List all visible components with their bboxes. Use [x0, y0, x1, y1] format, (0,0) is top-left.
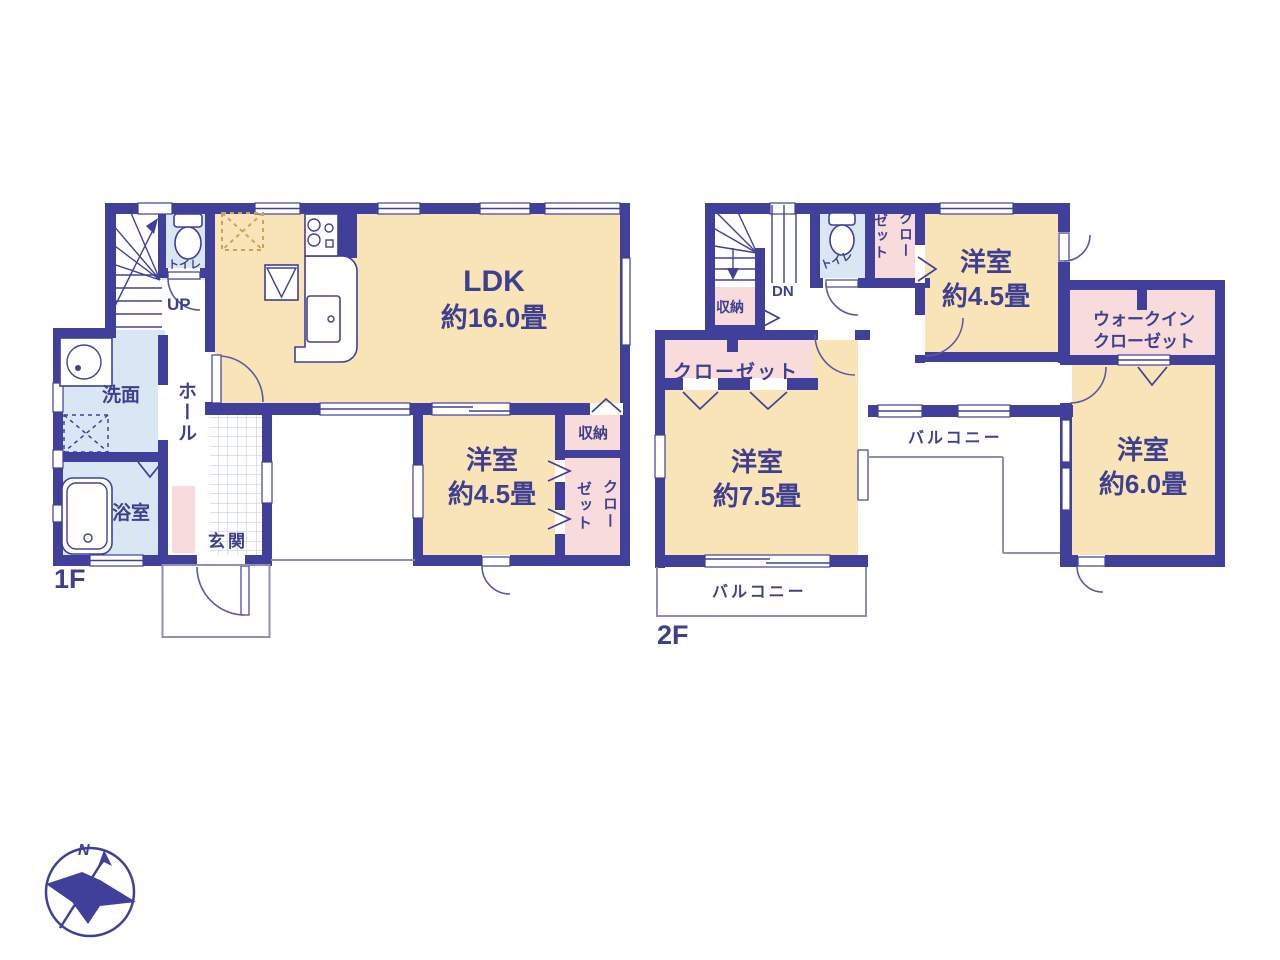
label-closet-1f-col1: クロー: [599, 479, 620, 541]
label-bathroom: 浴室: [112, 498, 150, 525]
compass-icon: [46, 848, 136, 936]
shoe-cabinet: [172, 486, 195, 553]
label-washroom: 洗面: [102, 380, 140, 407]
hood-triangle-icon: [265, 265, 298, 300]
label-balcony-side: バルコニー: [908, 424, 1003, 448]
label-toilet-1f: トイレ: [168, 256, 201, 272]
label-balcony-bottom: バルコニー: [712, 578, 807, 602]
wic-line2: クローゼット: [1066, 331, 1222, 353]
label-stairs-up: UP: [167, 295, 191, 315]
label-ldk: LDK 約16.0畳: [394, 262, 594, 336]
label-hall: ホール: [172, 381, 199, 453]
label-bedroom45-1f: 洋室 約4.5畳: [392, 444, 592, 512]
label-closet-2f: クローゼット: [673, 357, 799, 384]
toilet-icon-1f: [174, 214, 202, 259]
room-name: 洋室: [1043, 434, 1243, 468]
label-stairs-down: DN: [772, 283, 794, 300]
room-name: LDK: [394, 262, 594, 301]
label-closet-top-2f-col1: クロー: [896, 211, 916, 275]
label-floor2: 2F: [657, 620, 689, 651]
room-size: 約4.5畳: [888, 280, 1084, 314]
label-entrance: 玄関: [208, 527, 248, 552]
label-closet-top-2f-col2: ゼット: [871, 213, 891, 273]
floorplan-canvas: LDK 約16.0畳 洋室 約4.5畳 洗面 浴室 ホール 玄関 トイレ UP …: [0, 0, 1280, 960]
label-wic: ウォークイン クローゼット: [1066, 309, 1222, 353]
label-storage-2f: 収納: [716, 297, 744, 317]
label-bedroom45-2f: 洋室 約4.5畳: [888, 246, 1084, 314]
stairs-down-arrow: [727, 268, 739, 280]
wic-line1: ウォークイン: [1066, 309, 1222, 331]
room-size: 約4.5畳: [392, 478, 592, 512]
porch-outline: [163, 560, 416, 637]
room-size: 約7.5畳: [657, 480, 857, 514]
room-name: 洋室: [657, 446, 857, 480]
label-compass-north: N: [78, 842, 90, 860]
room-name: 洋室: [888, 246, 1084, 280]
room-size: 約6.0畳: [1043, 468, 1243, 502]
label-closet-1f-col2: ゼット: [573, 481, 594, 539]
label-bedroom60: 洋室 約6.0畳: [1043, 434, 1243, 502]
label-floor1: 1F: [54, 564, 86, 595]
label-storage-1f: 収納: [578, 422, 608, 443]
washbasin-icon: [60, 338, 112, 386]
bathtub-icon: [62, 478, 112, 554]
room-name: 洋室: [392, 444, 592, 478]
stairs-up-arrow: [146, 218, 158, 234]
stairs-2f: [708, 205, 796, 283]
room-size: 約16.0畳: [394, 301, 594, 336]
label-bedroom75: 洋室 約7.5畳: [657, 446, 857, 514]
